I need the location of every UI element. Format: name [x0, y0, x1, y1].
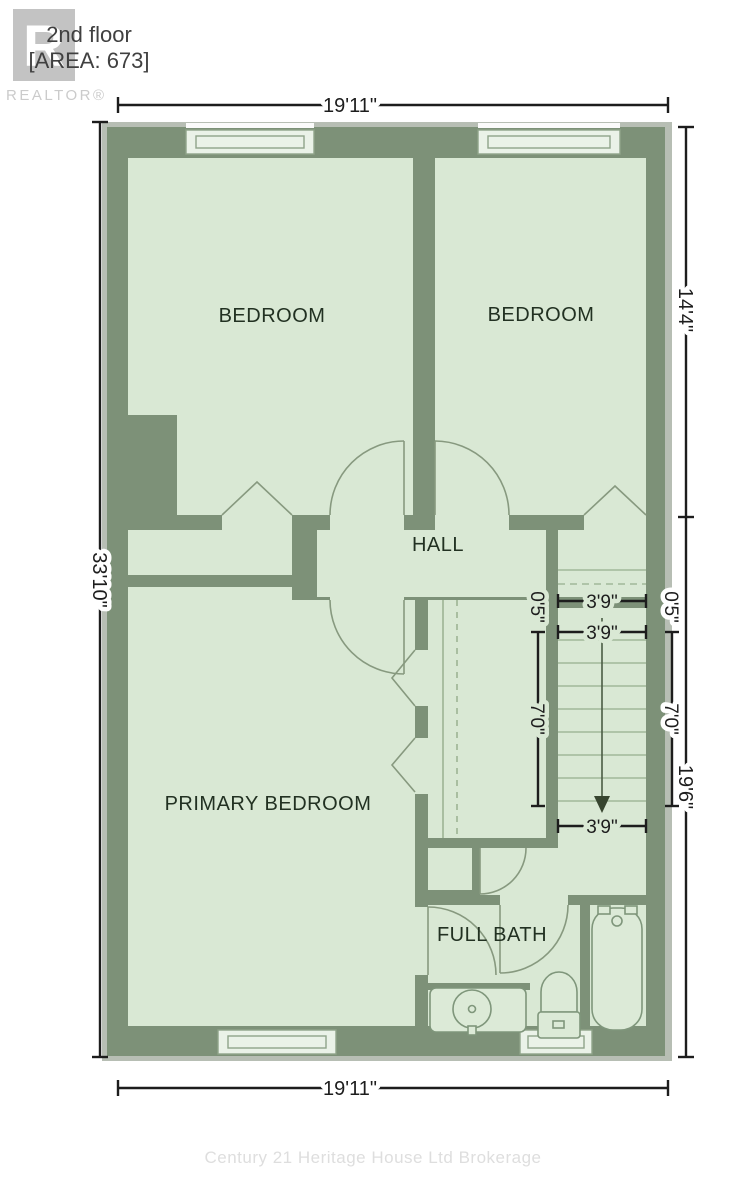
toilet-flush-icon [553, 1021, 564, 1028]
label-hall: HALL [412, 534, 464, 556]
dim-value-right-lower: 19'6" [674, 765, 696, 809]
floor-title: 2nd floor [46, 22, 132, 47]
dim-value-stair-width-mid: 3'9" [586, 623, 618, 644]
label-bedroom-right: BEDROOM [488, 304, 595, 326]
sink-drain-icon [469, 1006, 476, 1013]
dim-value-top: 19'11" [323, 95, 377, 117]
label-primary-bedroom: PRIMARY BEDROOM [165, 793, 372, 815]
dim-value-left: 33'10" [88, 552, 110, 607]
dim-value-stair-width-lower: 3'9" [586, 817, 618, 838]
doorway-primary [330, 587, 404, 600]
dim-top-width: 19'11" [118, 95, 668, 117]
floor-area-label: [AREA: 673] [28, 48, 149, 73]
window-sill [186, 123, 314, 128]
tub-handle-left-icon [598, 906, 610, 914]
dim-value-stair-width-upper: 3'9" [586, 592, 618, 613]
doorway-bedroom-right [435, 515, 509, 530]
floorplan-page: R REALTOR® 2nd floor [AREA: 673] [0, 0, 747, 1200]
room-closet-left [128, 530, 292, 575]
plan-title-block: 2nd floor [AREA: 673] [28, 22, 149, 73]
dim-value-stair-run-left: 7'0" [526, 703, 547, 735]
dim-value-stair-offset-right: 0'5" [660, 591, 681, 623]
dim-value-stair-offset-left: 0'5" [526, 591, 547, 623]
dim-bottom-width: 19'11" [118, 1078, 668, 1100]
dim-value-right-upper: 14'4" [674, 288, 696, 332]
label-bedroom-left: BEDROOM [219, 305, 326, 327]
tub-niche-wall [580, 905, 590, 1026]
tub-handle-right-icon [625, 906, 637, 914]
toilet-bowl-icon [541, 972, 577, 1012]
room-understair-closet [428, 848, 472, 890]
window-top-right-pane [488, 136, 610, 148]
room-bedroom-right [435, 158, 646, 515]
window-sill [478, 123, 620, 128]
tub-faucet-icon [612, 916, 622, 926]
closet-opening-primary-2 [415, 738, 428, 794]
closet-opening-left-bedroom [222, 515, 292, 530]
brokerage-watermark: Century 21 Heritage House Ltd Brokerage [204, 1148, 541, 1167]
chimney-block [125, 415, 177, 515]
dim-value-stair-run-right: 7'0" [660, 703, 681, 735]
sink-faucet-icon [468, 1026, 476, 1035]
doorway-bath-left [415, 907, 428, 975]
doorway-bath [500, 893, 568, 907]
doorway-bedroom-left [330, 515, 404, 530]
closet-opening-right-bedroom [584, 515, 646, 530]
floorplan-canvas: R REALTOR® 2nd floor [AREA: 673] [0, 0, 747, 1200]
window-top-left-pane [196, 136, 304, 148]
realtor-logo-wordmark: REALTOR® [6, 87, 107, 104]
dim-value-bottom: 19'11" [323, 1078, 377, 1100]
closet-opening-primary-1 [415, 650, 428, 706]
window-bottom-left-pane [228, 1036, 326, 1048]
label-full-bath: FULL BATH [437, 924, 547, 946]
